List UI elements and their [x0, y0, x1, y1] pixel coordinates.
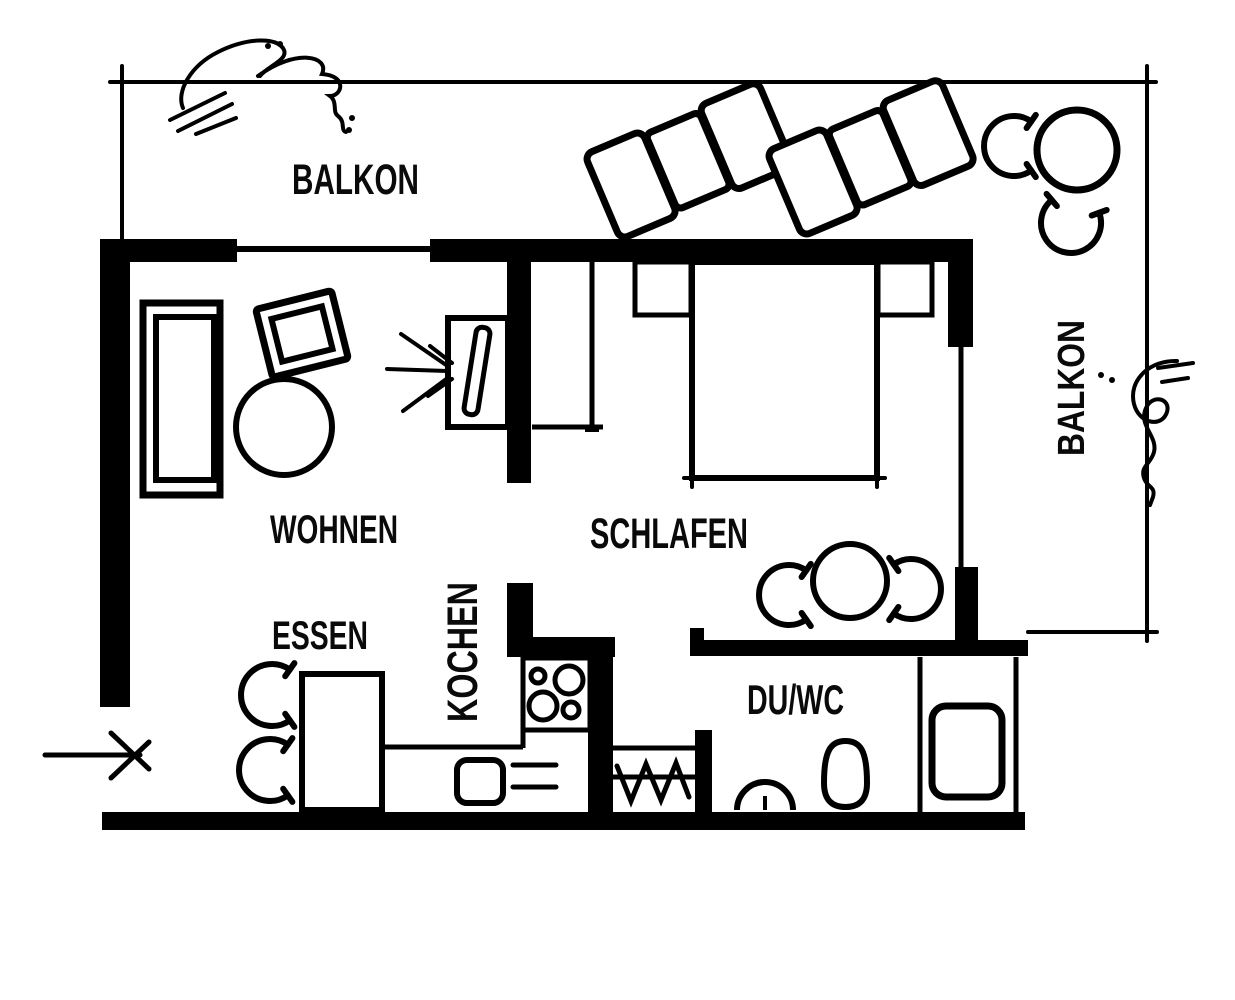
double-bed: [692, 262, 877, 478]
armchair: [256, 291, 349, 378]
plant-scribble-wave: [258, 58, 346, 132]
tv-rays: [387, 334, 452, 411]
kitchen-sink: [457, 760, 503, 803]
balcony-table: [1037, 110, 1117, 190]
wall-bath-top: [690, 640, 1028, 656]
walls: [100, 239, 1028, 830]
bedroom-chair-left: [759, 564, 811, 626]
bedroom-table: [813, 544, 887, 618]
wall-hall-right: [695, 730, 712, 814]
entrance-arrow-barb-upper: [111, 733, 149, 769]
dining-furniture: [239, 663, 382, 810]
toilet: [824, 741, 867, 807]
balcony-chair-bottom: [1041, 194, 1107, 253]
label-essen: ESSEN: [272, 614, 368, 658]
entrance-arrow-icon: [45, 733, 149, 778]
coffee-table: [236, 379, 332, 475]
balcony-furniture: [585, 78, 1117, 253]
sun-lounger-right: [767, 78, 976, 236]
nightstand-right: [878, 262, 932, 315]
entrance-arrow-barb-lower: [111, 742, 149, 778]
wall-right-upper: [948, 258, 973, 347]
shower-tray: [932, 706, 1002, 797]
label-kochen: KOCHEN: [439, 582, 487, 722]
label-balkon-right: BALKON: [1051, 320, 1093, 456]
garderobe-hangers-zigzag: [617, 763, 689, 801]
living-room-furniture: [143, 291, 508, 495]
burner-large-tr: [555, 666, 583, 694]
plant-scribble-loop: [181, 40, 284, 108]
burner-large-bl: [529, 692, 557, 720]
floor-plan-svg: BALKON BALKON WOHNEN SCHLAFEN ESSEN KOCH…: [0, 0, 1235, 1000]
wall-bottom: [102, 812, 1025, 830]
sun-lounger-left: [585, 81, 794, 239]
nightstand-left: [635, 262, 691, 315]
sink-drainer-lines: [513, 765, 556, 787]
plant-scribble-hatches: [1158, 363, 1193, 382]
plant-sketch-top-left: [170, 40, 355, 134]
wall-kitchen-top: [507, 637, 615, 657]
bedroom-chair-right: [889, 558, 941, 620]
label-balkon-top: BALKON: [292, 156, 419, 204]
bedroom-furniture: [532, 262, 941, 626]
balcony-chair-left: [984, 115, 1036, 177]
hall-garderobe: [613, 748, 697, 801]
label-schlafen: SCHLAFEN: [590, 510, 748, 558]
label-wohnen: WOHNEN: [270, 508, 398, 552]
wall-left: [100, 239, 130, 707]
label-duwc: DU/WC: [747, 676, 844, 723]
dining-chair-lower: [239, 738, 292, 802]
dining-table: [302, 674, 382, 810]
wall-bath-nub: [690, 628, 704, 642]
sofa-inner: [156, 317, 214, 480]
floor-plan-page: BALKON BALKON WOHNEN SCHLAFEN ESSEN KOCH…: [0, 0, 1235, 1000]
dining-chair-upper: [241, 663, 294, 727]
burner-small-tl: [531, 669, 545, 683]
plant-dots: [1098, 372, 1115, 383]
armchair-inner: [271, 306, 332, 361]
burner-small-br: [563, 702, 579, 718]
